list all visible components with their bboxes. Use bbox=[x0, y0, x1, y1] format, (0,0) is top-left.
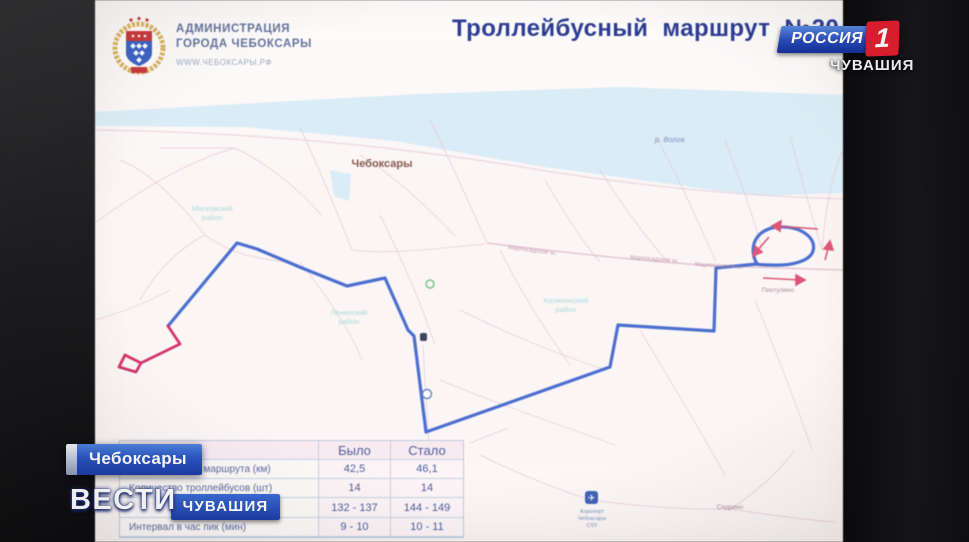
location-badge: Чебоксары bbox=[66, 444, 202, 475]
svg-text:Чебоксары: Чебоксары bbox=[578, 516, 606, 522]
airport-label: Аэропорт Чебоксары CSY bbox=[578, 509, 606, 529]
org-name: АДМИНИСТРАЦИЯ ГОРОДА ЧЕБОКСАРЫ bbox=[176, 22, 312, 52]
stop-marker-blue bbox=[423, 390, 432, 399]
location-badge-tab bbox=[66, 444, 77, 475]
svg-text:Марпосадское ш.: Марпосадское ш. bbox=[508, 245, 557, 257]
svg-text:Калининский: Калининский bbox=[544, 296, 589, 305]
airport-marker: ✈ bbox=[585, 491, 598, 504]
road-labels: Марпосадское ш. Марпосадское ш. Марпосад… bbox=[508, 245, 744, 271]
svg-text:CSY: CSY bbox=[586, 523, 598, 529]
org-url: WWW.ЧЕБОКСАРЫ.РФ bbox=[176, 58, 272, 67]
svg-text:Ленинский: Ленинский bbox=[331, 308, 368, 317]
row-was: 132 - 137 bbox=[319, 498, 391, 518]
row-was: 42,5 bbox=[319, 460, 391, 479]
svg-text:Московский: Московский bbox=[191, 204, 232, 213]
row-label: Интервал в час пик (мин) bbox=[120, 518, 319, 537]
row-now: 14 bbox=[391, 479, 463, 498]
district-labels: Московский район Ленинский район Калинин… bbox=[191, 204, 588, 326]
row-was: 9 - 10 bbox=[319, 518, 391, 537]
channel-one-icon: 1 bbox=[865, 20, 899, 56]
svg-text:Марпосадское ш.: Марпосадское ш. bbox=[630, 255, 679, 264]
row-was: 14 bbox=[319, 479, 391, 498]
vesti-lower-third: ВЕСТИ ЧУВАШИЯ bbox=[70, 484, 280, 520]
city-bay-water bbox=[330, 170, 351, 201]
svg-text:район: район bbox=[202, 213, 223, 222]
svg-text:Пихтулино: Пихтулино bbox=[762, 287, 795, 294]
channel-name-banner: РОССИЯ bbox=[777, 26, 878, 53]
trolleybus-route-existing bbox=[168, 243, 757, 432]
col-header-was: Было bbox=[319, 441, 391, 460]
svg-text:район: район bbox=[339, 317, 360, 326]
col-header-now: Стало bbox=[391, 441, 463, 460]
channel-region-label: ЧУВАШИЯ bbox=[830, 57, 914, 74]
row-now: 10 - 11 bbox=[391, 518, 463, 537]
stop-marker-green bbox=[426, 280, 434, 288]
route-new-segment bbox=[119, 326, 180, 372]
place-labels: Пихтулино Сядрино bbox=[717, 287, 795, 511]
row-now: 144 - 149 bbox=[391, 498, 463, 518]
location-badge-label: Чебоксары bbox=[77, 444, 202, 475]
svg-text:Аэропорт: Аэропорт bbox=[580, 509, 605, 515]
vesti-region-badge: ЧУВАШИЯ bbox=[171, 494, 281, 520]
svg-text:район: район bbox=[556, 305, 577, 314]
volga-river-water bbox=[95, 87, 843, 196]
org-name-line1: АДМИНИСТРАЦИЯ bbox=[176, 22, 312, 37]
svg-text:Марпосадское ш.: Марпосадское ш. bbox=[695, 262, 744, 271]
airplane-icon: ✈ bbox=[588, 493, 596, 503]
org-name-line2: ГОРОДА ЧЕБОКСАРЫ bbox=[176, 37, 312, 52]
stop-marker-dark bbox=[420, 333, 427, 341]
cheboksary-coat-of-arms bbox=[111, 15, 167, 77]
river-label: р. Волга bbox=[654, 135, 684, 144]
row-now: 46,1 bbox=[391, 460, 463, 479]
city-label: Чебоксары bbox=[351, 158, 412, 170]
svg-text:Сядрино: Сядрино bbox=[717, 504, 744, 511]
vesti-logo: ВЕСТИ bbox=[70, 484, 177, 517]
